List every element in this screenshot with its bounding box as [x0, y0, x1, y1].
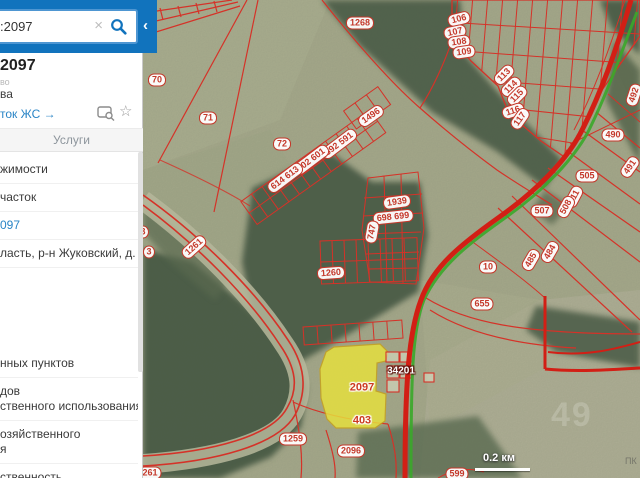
- clear-search-icon[interactable]: ×: [94, 17, 103, 34]
- field-row: часток: [0, 184, 138, 212]
- parcel-label-490[interactable]: 490: [601, 129, 624, 142]
- parcel-label-484[interactable]: 484: [539, 239, 562, 265]
- parcel-label-2096[interactable]: 2096: [337, 445, 365, 458]
- field-row: жимости: [0, 156, 138, 184]
- result-meta: во: [0, 77, 10, 87]
- parcel-label-109[interactable]: 109: [452, 44, 477, 60]
- search-icon[interactable]: [110, 18, 127, 40]
- field-value: жимости: [0, 162, 138, 177]
- favorite-star-icon[interactable]: ☆: [119, 102, 132, 120]
- parcel-label-1268[interactable]: 1268: [346, 17, 374, 30]
- watermark-digits: 49: [551, 396, 593, 435]
- parcel-label-34201[interactable]: 34201: [384, 366, 418, 377]
- field-row: озяйственногоя: [0, 421, 138, 464]
- search-box: ×: [0, 9, 138, 44]
- parcel-label-403[interactable]: 403: [350, 416, 374, 427]
- field-row: довственного использования: [0, 378, 138, 421]
- tab-services[interactable]: Услуги: [0, 128, 143, 152]
- result-fields-top: жимостичасток097ласть, р-н Жуковский, д.: [0, 156, 138, 268]
- parcel-label-1259[interactable]: 1259: [279, 433, 307, 446]
- parcel-label-505[interactable]: 505: [575, 170, 598, 183]
- parcel-label-1496[interactable]: 1496: [356, 103, 386, 130]
- result-fields-bottom: нных пунктовдовственного использованияоз…: [0, 350, 138, 478]
- field-value: я: [0, 442, 138, 457]
- parcel-label-3[interactable]: 3: [143, 246, 155, 259]
- panel-scrollbar[interactable]: [138, 152, 143, 372]
- field-value: озяйственного: [0, 427, 138, 442]
- field-row-link: 097: [0, 212, 138, 240]
- parcel-label-655[interactable]: 655: [470, 298, 493, 311]
- field-value: ственного использования: [0, 399, 138, 414]
- field-value: нных пунктов: [0, 356, 138, 371]
- search-header: × ‹: [0, 0, 157, 53]
- parcel-label-72[interactable]: 72: [273, 138, 291, 151]
- parcel-label-261[interactable]: 261: [143, 467, 162, 478]
- search-results-panel: 2097 во ва ток ЖС → ☆ Услуги жимостичаст…: [0, 0, 143, 478]
- parcel-label-1261[interactable]: 1261: [179, 233, 209, 261]
- result-subtitle: ва: [0, 87, 13, 101]
- field-row: ласть, р-н Жуковский, д.: [0, 240, 138, 268]
- field-value: ственность: [0, 470, 138, 478]
- parcel-label-10[interactable]: 10: [479, 261, 497, 274]
- parcel-label-491[interactable]: 491: [618, 154, 640, 180]
- scale-label: 0.2 км: [483, 452, 543, 464]
- watermark-corner: ПК: [625, 456, 637, 466]
- parcel-label-485[interactable]: 485: [520, 247, 543, 273]
- field-value: дов: [0, 384, 138, 399]
- field-value: часток: [0, 190, 138, 205]
- parcel-label-492[interactable]: 492: [624, 82, 640, 108]
- parcel-label-2097[interactable]: 2097: [347, 383, 377, 394]
- parcel-label-3[interactable]: 3: [143, 226, 149, 239]
- result-title: 2097: [0, 57, 36, 75]
- field-row: нных пунктов: [0, 350, 138, 378]
- parcel-label-599[interactable]: 599: [445, 468, 468, 478]
- map-canvas[interactable]: 1268707172106107108109113114115116117149…: [143, 0, 640, 478]
- field-value: ласть, р-н Жуковский, д.: [0, 246, 138, 261]
- parcel-label-71[interactable]: 71: [199, 112, 217, 125]
- parcel-label-507[interactable]: 507: [530, 205, 553, 218]
- pkk-app: 1268707172106107108109113114115116117149…: [0, 0, 640, 478]
- parcel-label-747[interactable]: 747: [364, 220, 381, 245]
- cadastral-number-link[interactable]: 097: [0, 218, 138, 233]
- result-card: 2097 во ва ток ЖС → ☆: [0, 53, 143, 128]
- result-link[interactable]: ток ЖС →: [0, 107, 56, 121]
- field-row: ственность: [0, 464, 138, 478]
- collapse-panel-icon[interactable]: ‹: [143, 17, 155, 35]
- parcel-label-614-613[interactable]: 614 613: [265, 161, 305, 196]
- parcel-label-70[interactable]: 70: [148, 74, 166, 87]
- parcel-label-1260[interactable]: 1260: [317, 266, 346, 281]
- search-input[interactable]: [0, 16, 80, 36]
- scale-bar: [475, 468, 530, 471]
- locate-on-map-icon[interactable]: [97, 106, 115, 126]
